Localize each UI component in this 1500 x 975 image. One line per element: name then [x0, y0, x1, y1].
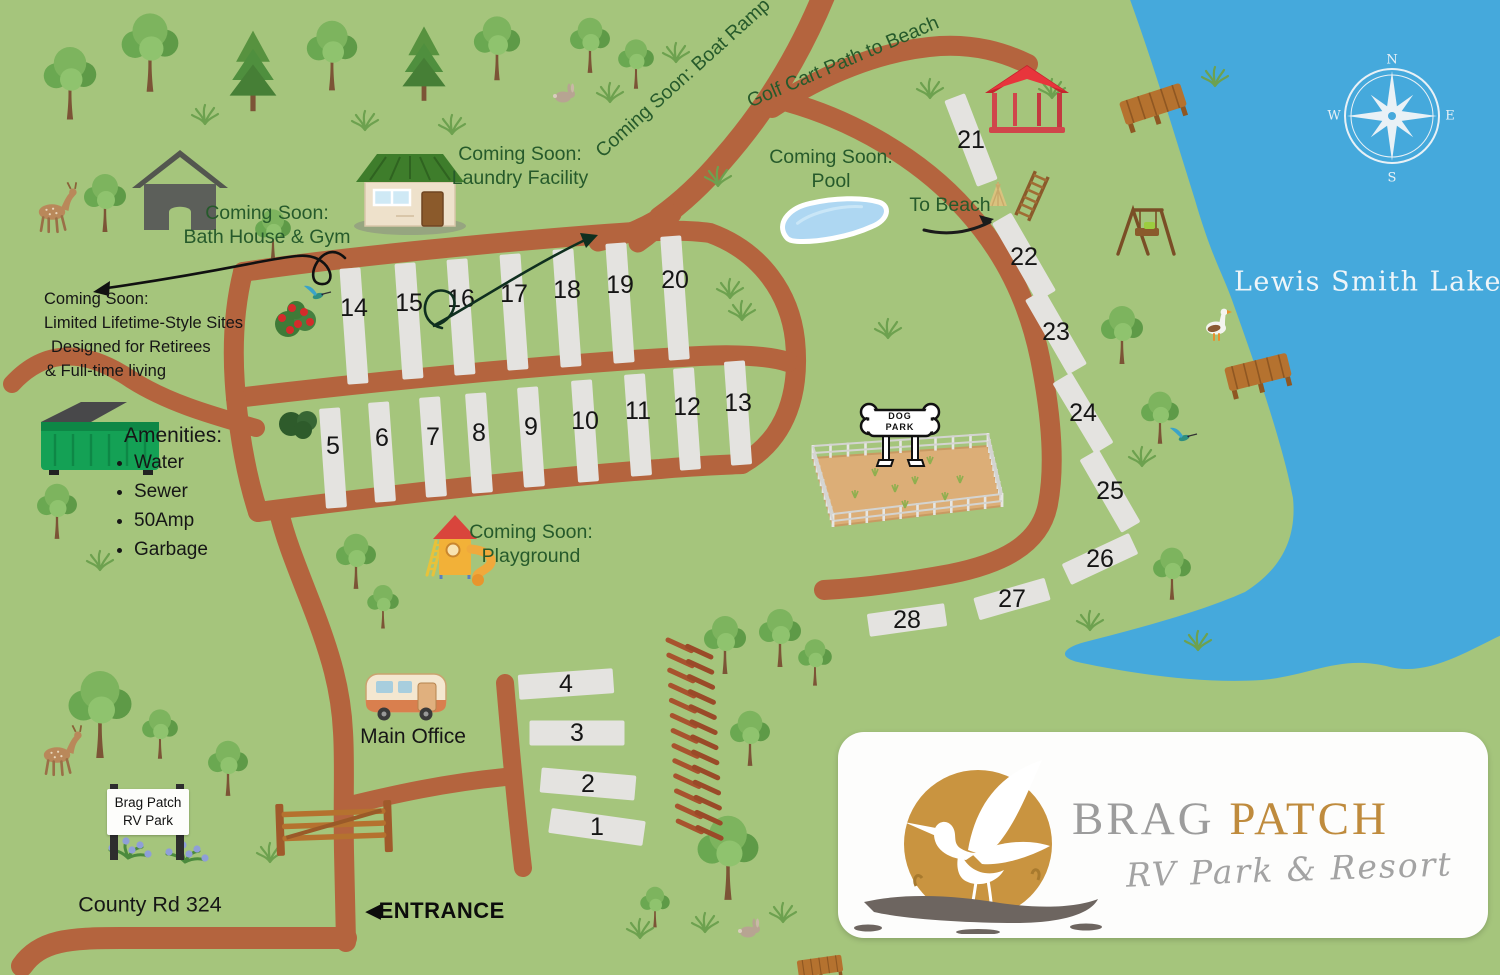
site-1: 1	[548, 808, 646, 846]
road-beach-road	[788, 102, 1052, 590]
dock-icon	[797, 955, 845, 975]
site-pad	[339, 267, 368, 384]
site-pad	[499, 253, 528, 370]
site-15: 15	[394, 262, 423, 379]
site-number: 19	[606, 271, 634, 299]
site-25: 25	[1079, 449, 1140, 533]
site-number: 14	[340, 294, 368, 322]
grass-icon	[1129, 447, 1155, 466]
site-number: 26	[1086, 545, 1114, 573]
tree-icon	[570, 18, 610, 73]
site-20: 20	[660, 235, 690, 360]
svg-text:DOG: DOG	[888, 411, 912, 421]
grass-icon	[1077, 611, 1103, 630]
site-18: 18	[552, 248, 581, 367]
site-number: 8	[472, 419, 486, 447]
tree-icon	[798, 639, 832, 685]
grass-icon	[87, 551, 113, 570]
laundry-icon	[354, 154, 466, 235]
pine-icon	[230, 31, 277, 112]
tree-icon	[44, 47, 97, 120]
site-number: 5	[326, 432, 340, 460]
site-5: 5	[319, 407, 347, 508]
grass-icon	[352, 111, 378, 130]
tree-icon	[307, 21, 357, 91]
grass-icon	[729, 301, 755, 320]
hay-icon	[989, 181, 1007, 206]
logo-wordmark: BRAG PATCH	[1072, 792, 1389, 846]
site-number: 1	[590, 813, 604, 841]
swing-icon	[1118, 210, 1174, 254]
site-4: 4	[518, 668, 615, 700]
site-number: 2	[581, 770, 595, 798]
site-number: 22	[1010, 243, 1038, 271]
site-21: 21	[944, 93, 998, 187]
site-number: 9	[524, 413, 538, 441]
site-17: 17	[499, 253, 528, 370]
site-14: 14	[339, 267, 368, 384]
park-entrance-sign: Brag PatchRV Park	[107, 789, 189, 835]
grass-icon	[597, 83, 623, 102]
pool-icon	[777, 181, 890, 254]
compass-n: N	[1386, 53, 1397, 68]
site-24: 24	[1052, 372, 1113, 454]
tree-icon	[367, 585, 399, 629]
park-map-stage: 1415161718192056789101112132122232425262…	[0, 0, 1500, 975]
road-entrance-road	[279, 512, 346, 942]
site-number: 3	[570, 719, 584, 747]
site-number: 13	[724, 389, 752, 417]
deer-icon	[39, 182, 77, 232]
site-number: 7	[426, 423, 440, 451]
flowers-icon	[165, 841, 208, 862]
grass-icon	[692, 913, 718, 932]
tree-icon	[640, 887, 669, 928]
site-27: 27	[973, 578, 1050, 621]
tree-icon	[474, 16, 520, 80]
railfence-icon	[654, 640, 734, 838]
logo-tagline: RV Park & Resort	[1125, 844, 1453, 894]
tree-icon	[618, 39, 654, 88]
compass-e: E	[1445, 109, 1455, 124]
road-loop-left-top	[234, 272, 243, 398]
road-loop-left-bottom	[236, 398, 258, 512]
goose-icon	[1206, 309, 1232, 340]
grass-icon	[717, 279, 743, 298]
grass-icon	[439, 115, 465, 134]
site-pad	[660, 235, 690, 360]
site-28: 28	[867, 603, 947, 637]
site-number: 24	[1069, 399, 1097, 427]
site-pad	[552, 248, 581, 367]
hummingbird-icon	[304, 286, 331, 301]
site-number: 15	[395, 289, 423, 317]
camper-icon	[366, 674, 446, 721]
pavilion-icon	[985, 65, 1069, 133]
tree-icon	[1101, 306, 1143, 364]
compass-w: W	[1327, 109, 1341, 124]
tree-icon	[1141, 392, 1179, 444]
site-number: 18	[553, 276, 581, 304]
roses-icon	[275, 301, 316, 337]
site-pad	[368, 401, 396, 502]
site-number: 6	[375, 424, 389, 452]
tree-icon	[84, 174, 126, 232]
dumpster-icon	[41, 402, 159, 475]
grass-icon	[663, 43, 689, 62]
site-6: 6	[368, 401, 396, 502]
tree-icon	[208, 741, 248, 796]
pine-icon	[402, 26, 445, 100]
tree-icon	[759, 609, 801, 667]
site-number: 23	[1042, 318, 1070, 346]
playground-icon	[427, 515, 491, 586]
grass-icon	[917, 79, 943, 98]
site-number: 4	[559, 670, 573, 698]
site-pad	[624, 373, 652, 476]
tree-icon	[69, 671, 132, 758]
tree-icon	[730, 711, 770, 766]
tree-icon	[336, 534, 376, 589]
site-number: 25	[1096, 477, 1124, 505]
deer-icon	[44, 725, 82, 775]
road-dumpster-spur	[12, 356, 256, 428]
site-3: 3	[530, 719, 625, 747]
site-pad	[605, 242, 634, 363]
site-number: 28	[893, 606, 921, 634]
grass-icon	[770, 903, 796, 922]
site-number: 10	[571, 407, 599, 435]
compass-s: S	[1388, 171, 1397, 186]
tree-icon	[142, 709, 178, 758]
ladder-icon	[1016, 171, 1048, 221]
tree-icon	[704, 616, 746, 674]
site-number: 27	[998, 585, 1026, 613]
site-13: 13	[724, 360, 752, 465]
site-12: 12	[673, 367, 701, 470]
road-county-road	[22, 938, 346, 966]
bathhouse-icon	[132, 150, 228, 230]
tree-icon	[37, 484, 77, 539]
tree-icon	[122, 13, 179, 91]
brand-logo-panel: BRAG PATCH RV Park & Resort	[838, 732, 1488, 938]
site-number: 21	[957, 126, 985, 154]
site-2: 2	[540, 767, 637, 800]
road-office-branch	[346, 777, 505, 806]
site-number: 11	[625, 397, 651, 425]
tree-icon	[1153, 548, 1191, 600]
rabbit-icon	[738, 919, 760, 938]
svg-text:PARK: PARK	[886, 422, 915, 432]
site-11: 11	[624, 373, 652, 476]
grass-icon	[875, 319, 901, 338]
site-number: 20	[661, 266, 689, 294]
rabbit-icon	[553, 84, 575, 103]
site-26: 26	[1062, 533, 1139, 585]
road-sites-1-4-road	[505, 683, 523, 868]
grass-icon	[192, 105, 218, 124]
site-number: 12	[673, 393, 701, 421]
grass-icon	[627, 919, 653, 938]
site-19: 19	[605, 242, 634, 363]
tree-icon	[255, 209, 291, 258]
dogpark-icon: DOGPARK	[813, 404, 1002, 527]
hummingbird-icon	[1170, 428, 1197, 443]
site-pad	[394, 262, 423, 379]
tree-icon	[698, 816, 759, 900]
bush-icon	[279, 411, 317, 439]
